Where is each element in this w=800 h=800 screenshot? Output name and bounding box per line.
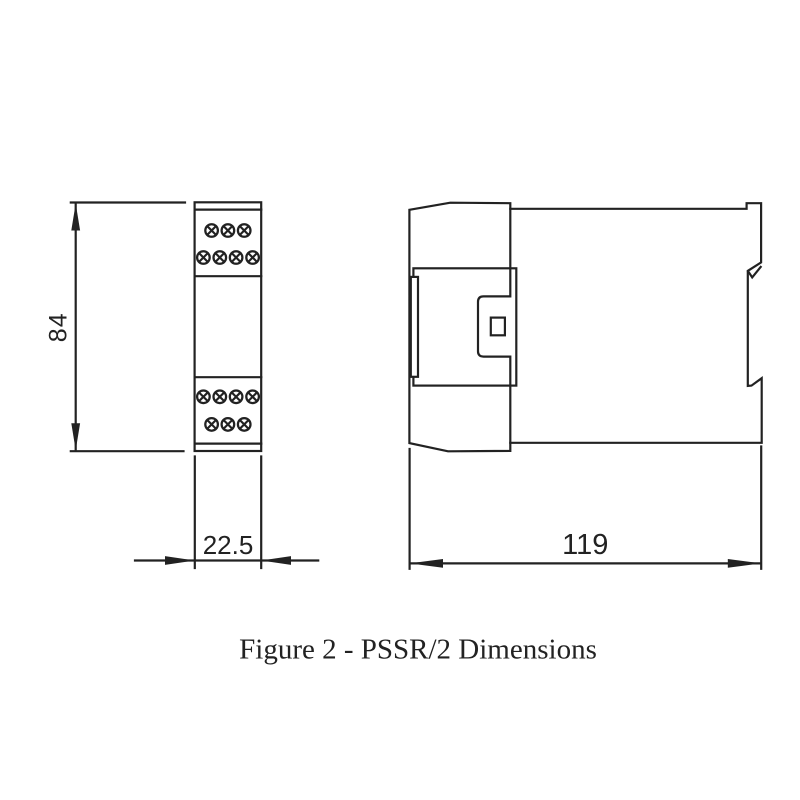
svg-text:22.5: 22.5	[203, 530, 254, 560]
svg-text:119: 119	[562, 529, 608, 561]
svg-text:84: 84	[45, 312, 73, 342]
svg-text:Figure 2 - PSSR/2 Dimensions: Figure 2 - PSSR/2 Dimensions	[239, 634, 597, 666]
